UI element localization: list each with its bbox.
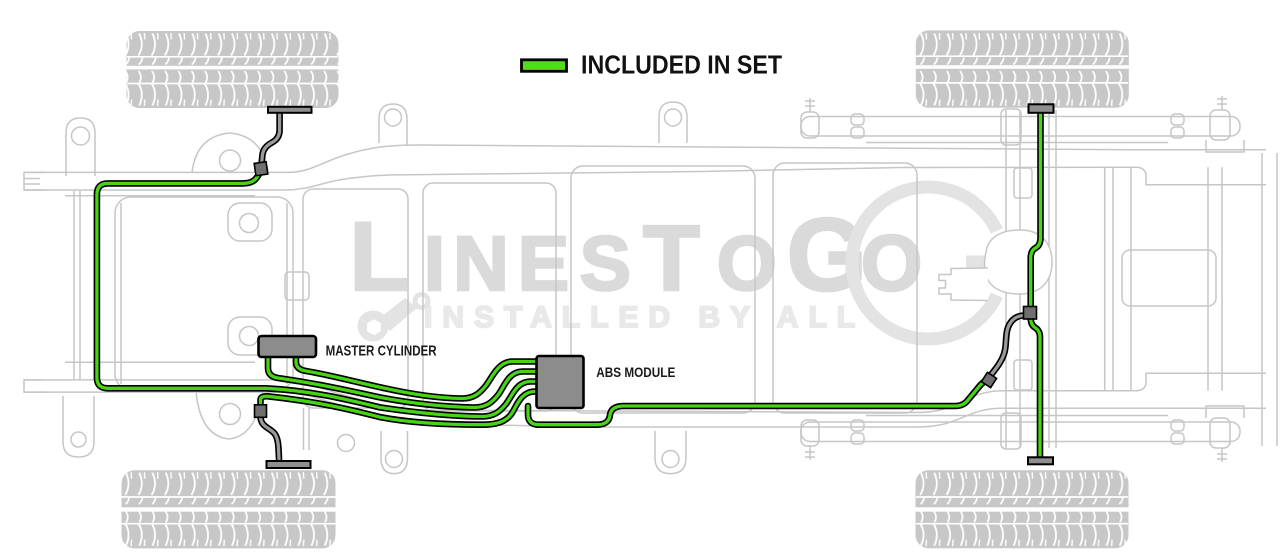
svg-text:ABS MODULE: ABS MODULE: [596, 364, 675, 380]
svg-text:INSTALLED BY ALL: INSTALLED BY ALL: [424, 301, 865, 334]
svg-text:INCLUDED IN SET: INCLUDED IN SET: [581, 50, 782, 80]
svg-text:MASTER CYLINDER: MASTER CYLINDER: [326, 342, 437, 359]
